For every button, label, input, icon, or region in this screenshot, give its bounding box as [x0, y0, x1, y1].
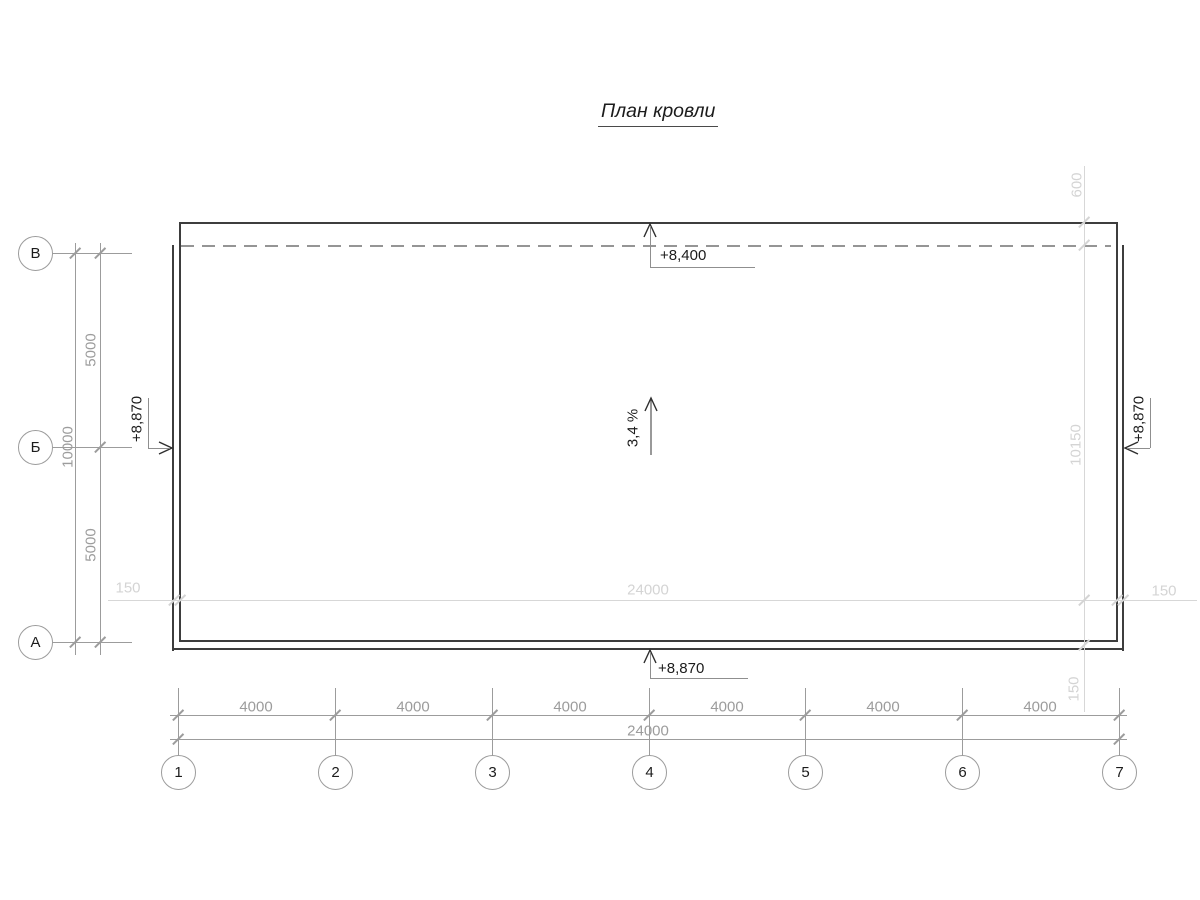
col-axis-label: 3 [488, 764, 496, 781]
elevation-leader [1127, 448, 1150, 449]
col-dim-label-segment: 4000 [239, 699, 272, 716]
col-dim-label-segment: 4000 [396, 699, 429, 716]
hidden-wall-line [181, 245, 1111, 247]
row-axis-circle-b: Б [18, 430, 53, 465]
col-dim-label-segment: 4000 [710, 699, 743, 716]
offset-dim-line-horizontal [108, 600, 1197, 601]
offset-dim-label-center: 24000 [627, 582, 669, 599]
offset-dim-label-left: 150 [115, 580, 140, 597]
elevation-leader [650, 653, 651, 678]
row-axis-leader [52, 642, 132, 643]
roof-plan-drawing: План кровли 600 10150 150 150 24000 150 … [0, 0, 1200, 900]
slope-arrow-icon [643, 394, 659, 458]
col-axis-circle-3: 3 [475, 755, 510, 790]
col-axis-circle-7: 7 [1102, 755, 1137, 790]
col-grid-extension [492, 688, 493, 757]
col-axis-label: 1 [174, 764, 182, 781]
row-axis-label: А [30, 634, 40, 651]
col-axis-label: 7 [1115, 764, 1123, 781]
offset-dim-label-bottom: 150 [1066, 676, 1083, 701]
row-axis-circle-v: В [18, 236, 53, 271]
elevation-leader [1150, 398, 1151, 448]
row-axis-circle-a: А [18, 625, 53, 660]
col-axis-circle-1: 1 [161, 755, 196, 790]
row-axis-leader [52, 253, 132, 254]
elevation-label-bottom: +8,870 [658, 660, 704, 677]
row-dim-label-segment: 5000 [83, 333, 100, 366]
col-dim-label-segment: 4000 [1023, 699, 1056, 716]
col-axis-label: 2 [331, 764, 339, 781]
elevation-leader [650, 267, 755, 268]
col-dim-label-segment: 4000 [553, 699, 586, 716]
elevation-leader [148, 448, 170, 449]
col-axis-circle-2: 2 [318, 755, 353, 790]
offset-dim-label-right: 150 [1151, 583, 1176, 600]
offset-dim-label-middle: 10150 [1068, 424, 1085, 466]
slope-label: 3,4 % [625, 409, 642, 447]
col-grid-extension [805, 688, 806, 757]
elevation-leader [650, 678, 748, 679]
elevation-label-right: +8,870 [1131, 396, 1148, 442]
col-axis-circle-5: 5 [788, 755, 823, 790]
col-axis-label: 6 [958, 764, 966, 781]
elevation-leader [650, 226, 651, 267]
col-dim-label-overall: 24000 [627, 723, 669, 740]
row-dim-line-segments [100, 243, 101, 655]
col-grid-extension [1119, 688, 1120, 757]
col-grid-extension [335, 688, 336, 757]
col-axis-label: 4 [645, 764, 653, 781]
drawing-title: План кровли [598, 100, 718, 127]
elevation-label-left: +8,870 [129, 396, 146, 442]
row-dim-label-overall: 10000 [60, 426, 77, 468]
col-grid-extension [178, 688, 179, 757]
elevation-leader [148, 398, 149, 448]
row-dim-label-segment: 5000 [83, 528, 100, 561]
col-axis-label: 5 [801, 764, 809, 781]
offset-dim-label-top: 600 [1069, 172, 1086, 197]
col-dim-label-segment: 4000 [866, 699, 899, 716]
row-axis-label: В [30, 245, 40, 262]
col-axis-circle-4: 4 [632, 755, 667, 790]
row-axis-label: Б [31, 439, 41, 456]
col-grid-extension [962, 688, 963, 757]
elevation-label-top: +8,400 [660, 247, 706, 264]
col-axis-circle-6: 6 [945, 755, 980, 790]
